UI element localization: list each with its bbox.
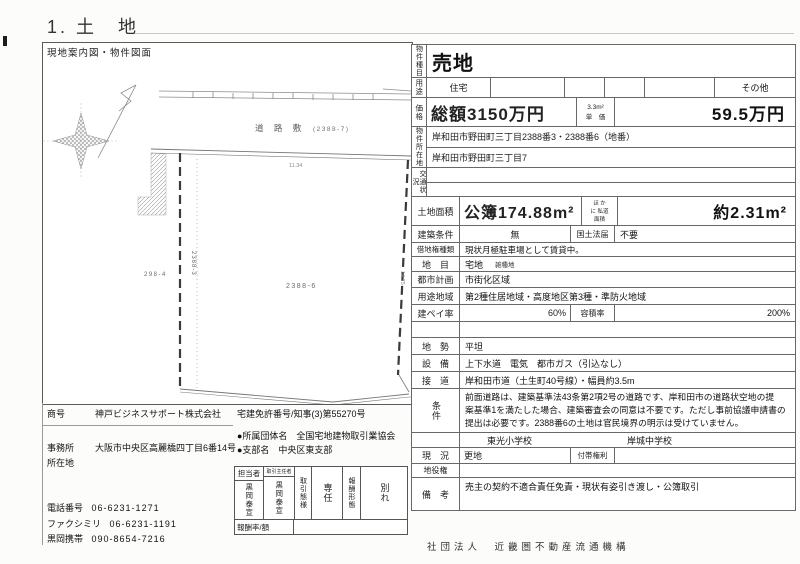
building-conditions-value: 無: [460, 226, 571, 242]
agency-panel: 商号 神戸ビジネスサポート株式会社 宅建免許番号/知事(3)第55270号 ●所…: [42, 403, 420, 545]
row-property-type: 物件種目 売地: [411, 44, 796, 78]
elementary-school: 東光小学校: [487, 434, 532, 447]
remarks-value: 売主の契約不適合責任免責・現状有姿引き渡し・公簿取引: [460, 478, 795, 510]
property-type-value: 売地: [427, 45, 795, 77]
row-frontage: 接 道 岸和田市道（土生町40号線）・幅員約3.5m: [411, 371, 796, 389]
row-remarks: 備 考 売主の契約不適合責任免責・現状有姿引き渡し・公簿取引: [411, 477, 796, 511]
attached-rights-label: 付帯権利: [571, 448, 615, 463]
zoning-value: 第2種住居地域・高度地区第3種・準防火地域: [460, 288, 795, 304]
agency-divider: [43, 425, 233, 426]
road-band: [159, 89, 411, 100]
price-total-value: 総額3150万円: [431, 100, 545, 125]
mobile-row: 黒岡携帯 090-8654-7216: [47, 532, 166, 545]
unit-price-value: 59.5万円: [615, 98, 795, 126]
land-area-label: 土地面積: [412, 197, 460, 225]
property-table: 物件種目 売地 用途 住宅 その他 価格 総額3150万円 3.3m² 単 価 …: [411, 45, 796, 511]
branch: ●支部名 中央区東支部: [237, 443, 332, 456]
row-conditions: 条件 前面道路は、建築基準法43条第2項2号の道路です、岸和田市の道路状空地の提…: [411, 388, 796, 433]
terrain-value: 平坦: [460, 338, 795, 354]
land-act-value: 不要: [615, 226, 795, 242]
page-title: 1. 土 地: [47, 13, 139, 39]
far-label: 容積率: [571, 305, 615, 321]
dimension-top: 11.34: [289, 163, 302, 169]
row-easement: 地役権: [411, 463, 796, 478]
parcel-sub-label: 2388-3: [190, 251, 196, 276]
access-line2: [427, 182, 795, 197]
fee-type-label: 報酬形態: [348, 467, 355, 519]
location-label: 物件所在地: [412, 127, 427, 167]
staff-column: 担当者 黒岡泰宣: [235, 467, 264, 519]
fee-type-value-cell: 別れ: [361, 467, 407, 519]
mobile-label: 黒岡携帯: [47, 534, 83, 544]
row-use: 用途 住宅 その他: [411, 77, 796, 98]
chief-header: 取引主任者: [264, 467, 294, 477]
top-rule: [130, 33, 794, 34]
private-road-label-1: ほ か: [593, 199, 606, 207]
transaction-mode-column: 取引態様: [295, 467, 312, 519]
mobile-number: 090-8654-7216: [92, 534, 166, 544]
terrain-label: 地 勢: [412, 338, 460, 354]
row-zoning: 用途地域 第2種住居地域・高度地区第3種・準防火地域: [411, 287, 796, 305]
row-current-state: 現 況 更地 付帯権利: [411, 447, 796, 464]
access-line1: [427, 168, 795, 182]
row-coverage: 建ペイ率 60% 容積率 200%: [411, 304, 796, 322]
fee-rate-label: 報酬率/額: [235, 520, 294, 534]
parcel-main-label: 2388-6: [286, 283, 317, 290]
city-planning-value: 市街化区域: [460, 272, 795, 287]
north-arrow-icon: [43, 85, 136, 179]
unit-price-label: 3.3m² 単 価: [577, 98, 615, 126]
organization-footer: 社団法人 近畿圏不動産流通機構: [427, 539, 630, 553]
location-line2: 岸和田市野田町三丁目7: [427, 147, 795, 168]
private-road-value: 約2.31m²: [618, 197, 795, 225]
private-road-label-2: に 私道: [590, 207, 608, 215]
row-utilities: 設 備 上下水道 電気 都市ガス（引込なし）: [411, 354, 796, 372]
unit-price-label-line1: 3.3m²: [587, 104, 604, 111]
phone-row: 電話番号 06-6231-1271: [47, 501, 160, 514]
conditions-line3: 提出は必要です。2388番6の土地は官民境界の明示は受けていません。: [465, 417, 790, 430]
chief-name: 黒岡泰宣: [275, 477, 283, 519]
transaction-mode-value-cell: 専任: [312, 467, 343, 519]
row-terrain: 地 勢 平坦: [411, 337, 796, 355]
fee-rate-value: [294, 520, 407, 534]
land-act-label: 国土法届: [571, 226, 615, 242]
land-category-value: 宅地: [465, 258, 483, 271]
staff-table: 担当者 黒岡泰宣 取引主任者 黒岡泰宣 取引態様 専任 報酬形態 別れ 報酬率/…: [234, 466, 408, 535]
row-leasehold: 借地権種類 現状月極駐車場として賃貸中。: [411, 242, 796, 257]
utilities-label: 設 備: [412, 355, 460, 371]
staff-name: 黒岡泰宣: [245, 481, 253, 519]
fax-row: ファクシミリ 06-6231-1191: [47, 517, 177, 530]
phone-number: 06-6231-1271: [92, 503, 160, 513]
fee-type-value: 別れ: [380, 467, 389, 519]
use-cell-residential: 住宅: [427, 78, 491, 97]
use-cell-2: [491, 78, 565, 97]
city-planning-label: 都市計画: [412, 272, 460, 287]
location-line1: 岸和田市野田町三丁目2388番3・2388番6（地番）: [427, 127, 795, 147]
use-cell-4: [605, 78, 645, 97]
junior-high-school: 岸城中学校: [627, 434, 672, 447]
office-address: 大阪市中央区高麗橋四丁目6番14号: [95, 441, 236, 454]
row-price: 価格 総額3150万円 3.3m² 単 価 59.5万円: [411, 97, 796, 127]
frontage-label: 接 道: [412, 372, 460, 388]
land-category-label: 地 目: [412, 257, 460, 271]
parcel-neighbor-label: 298-4: [144, 272, 167, 278]
road-label: 道 路 敷: [255, 123, 305, 133]
row-empty: [411, 321, 796, 338]
far-value: 200%: [615, 305, 795, 321]
use-label: 用途: [412, 78, 427, 97]
leasehold-value: 現状月極駐車場として賃貸中。: [460, 243, 795, 256]
license-number: 宅建免許番号/知事(3)第55270号: [237, 407, 366, 420]
row-land-category: 地 目 宅地 雑種地: [411, 256, 796, 272]
land-category-value-cell: 宅地 雑種地: [460, 257, 795, 271]
access-label: 交通状況: [412, 168, 427, 196]
utilities-value: 上下水道 電気 都市ガス（引込なし）: [460, 355, 795, 371]
price-label: 価格: [412, 98, 427, 126]
site-plan-drawing: 道 路 敷 (2388-7) 2388-6 298-4 2388-3 11.34…: [43, 43, 412, 404]
empty-label: [412, 322, 460, 337]
zoning-label: 用途地域: [412, 288, 460, 304]
private-road-label: ほ か に 私道 面積: [582, 197, 618, 225]
fee-type-column: 報酬形態: [343, 467, 361, 519]
row-land-area: 土地面積 公簿174.88m² ほ か に 私道 面積 約2.31m²: [411, 196, 796, 226]
use-cell-other: その他: [715, 78, 795, 97]
parcel-outline: [138, 149, 412, 404]
phone-label: 電話番号: [47, 503, 83, 513]
association: ●所属団体名 全国宅地建物取引業協会: [237, 429, 395, 442]
site-map-panel: 現地案内図・物件図面 道 路 敷 (2388-7): [42, 42, 413, 405]
scan-artifact: [3, 36, 7, 46]
building-conditions-label: 建築条件: [412, 226, 460, 242]
use-cell-5: [645, 78, 715, 97]
row-access: 交通状況: [411, 167, 796, 197]
chief-column: 取引主任者 黒岡泰宣: [264, 467, 295, 519]
private-road-label-3: 面積: [594, 215, 605, 223]
easement-value: [460, 464, 795, 477]
frontage-value: 岸和田市道（土生町40号線）・幅員約3.5m: [460, 372, 795, 388]
row-building-conditions: 建築条件 無 国土法届 不要: [411, 225, 796, 243]
trade-name: 神戸ビジネスサポート株式会社: [95, 407, 221, 420]
row-schools: 東光小学校 岸城中学校: [411, 432, 796, 448]
empty-value: [460, 322, 795, 337]
land-area-value: 公簿174.88m²: [464, 199, 575, 223]
staff-header: 担当者: [235, 467, 263, 481]
fax-label: ファクシミリ: [47, 519, 101, 529]
conditions-line2: 案基準1を満たした場合、建築審査会の同意は不要です。ただし事前協議申請書の: [465, 404, 790, 417]
dimension-right: 14.75: [399, 271, 405, 285]
coverage-value: 60%: [460, 305, 571, 321]
unit-price-label-line2: 単 価: [586, 111, 606, 121]
price-total: 総額3150万円: [427, 98, 577, 126]
office-label-line2: 所在地: [47, 456, 74, 469]
property-type-label: 物件種目: [412, 45, 427, 77]
transaction-mode-label: 取引態様: [300, 467, 307, 519]
office-label-line1: 事務所: [47, 441, 74, 454]
land-category-note: 雑種地: [495, 257, 515, 269]
land-area-value-cell: 公簿174.88m²: [460, 197, 582, 225]
conditions-line1: 前面道路は、建築基準法43条第2項2号の道路です、岸和田市の道路状空地の提: [465, 391, 790, 404]
current-state-value: 更地: [460, 448, 571, 463]
attached-rights-value: [615, 448, 795, 463]
road-parcel-number: (2388-7): [313, 126, 350, 133]
leasehold-label: 借地権種類: [412, 243, 460, 256]
row-location: 物件所在地 岸和田市野田町三丁目2388番3・2388番6（地番） 岸和田市野田…: [411, 126, 796, 168]
use-cell-3: [565, 78, 605, 97]
trade-name-label: 商号: [47, 407, 65, 420]
coverage-label: 建ペイ率: [412, 305, 460, 321]
transaction-mode-value: 専任: [323, 467, 332, 519]
fax-number: 06-6231-1191: [110, 519, 177, 529]
row-city-planning: 都市計画 市街化区域: [411, 271, 796, 288]
